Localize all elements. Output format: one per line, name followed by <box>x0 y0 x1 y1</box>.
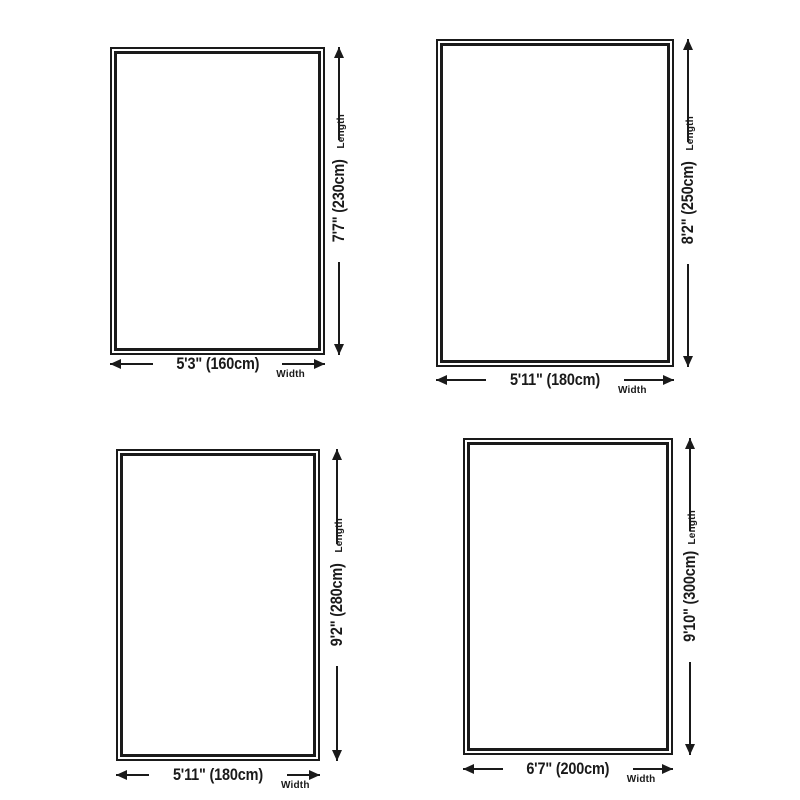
rug-outline <box>436 39 674 367</box>
width-dimension: 5'11" (180cm) Width <box>436 369 674 391</box>
width-axis-label: Width <box>627 774 656 785</box>
arrow-right-icon: Width <box>282 363 325 365</box>
width-dimension: 5'11" (180cm) Width <box>116 764 320 786</box>
rug-inner-outline <box>120 453 316 757</box>
width-dimension: 5'3" (160cm) Width <box>110 353 325 375</box>
rug-inner-outline <box>440 43 670 363</box>
rug-inner-outline <box>114 51 321 351</box>
arrow-left-icon <box>436 379 486 381</box>
rug-size-chart: Length 7'7" (230cm) 5'3" (160cm) Width L… <box>0 0 800 800</box>
arrow-right-icon: Width <box>624 379 674 381</box>
width-dimension: 6'7" (200cm) Width <box>463 758 673 780</box>
length-value: 8'2" (250cm) <box>678 162 698 245</box>
arrow-right-icon: Width <box>287 774 320 776</box>
length-axis-label: Length <box>685 116 696 151</box>
length-dimension: Length 8'2" (250cm) <box>673 39 703 367</box>
arrow-down-icon <box>687 264 689 367</box>
arrow-right-icon: Width <box>633 768 673 770</box>
rug-outline <box>463 438 673 755</box>
rug-outline <box>110 47 325 355</box>
rug-outline <box>116 449 320 761</box>
width-value: 5'3" (160cm) <box>176 354 259 374</box>
length-dimension: Length 7'7" (230cm) <box>324 47 354 355</box>
arrow-left-icon <box>116 774 149 776</box>
length-axis-label: Length <box>687 510 698 545</box>
length-axis-label: Length <box>334 518 345 553</box>
length-axis-label: Length <box>336 114 347 149</box>
arrow-down-icon <box>338 262 340 355</box>
width-value: 5'11" (180cm) <box>510 370 600 390</box>
length-dimension: Length 9'2" (280cm) <box>322 449 352 761</box>
arrow-left-icon <box>463 768 503 770</box>
width-value: 5'11" (180cm) <box>173 765 263 785</box>
width-axis-label: Width <box>276 369 305 380</box>
rug-inner-outline <box>467 442 669 751</box>
arrow-down-icon <box>689 662 691 755</box>
width-axis-label: Width <box>281 780 310 791</box>
width-value: 6'7" (200cm) <box>527 759 610 779</box>
width-axis-label: Width <box>618 385 647 396</box>
length-value: 9'10" (300cm) <box>680 551 700 642</box>
length-value: 7'7" (230cm) <box>329 160 349 243</box>
length-dimension: Length 9'10" (300cm) <box>675 438 705 755</box>
arrow-left-icon <box>110 363 153 365</box>
length-value: 9'2" (280cm) <box>327 564 347 647</box>
arrow-down-icon <box>336 666 338 761</box>
